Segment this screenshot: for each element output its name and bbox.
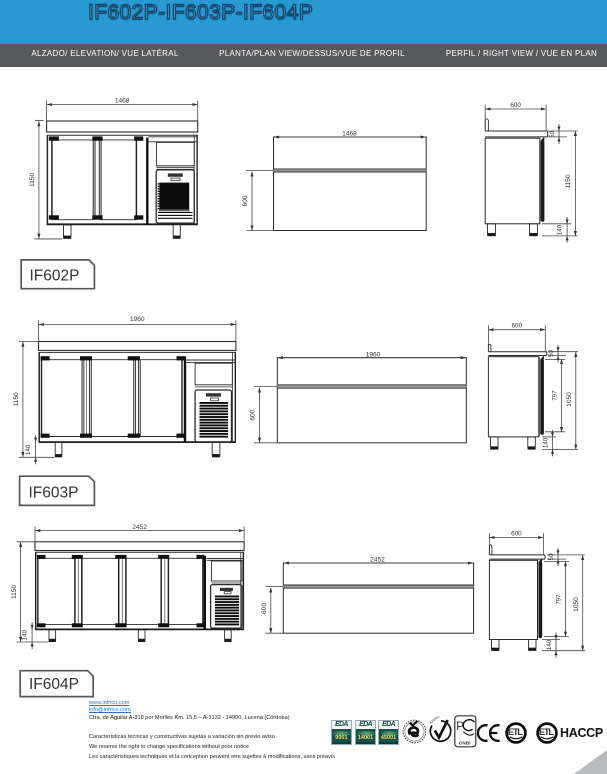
svg-text:2452: 2452 (370, 557, 385, 564)
svg-text:140: 140 (546, 639, 553, 650)
svg-text:1150: 1150 (13, 392, 20, 407)
svg-text:140: 140 (25, 444, 32, 455)
svg-text:600: 600 (512, 322, 523, 329)
svg-text:IF604P: IF604P (29, 676, 79, 693)
svg-text:1468: 1468 (115, 97, 130, 104)
svg-text:1150: 1150 (565, 174, 572, 189)
svg-text:1150: 1150 (29, 173, 36, 188)
svg-text:1050: 1050 (573, 597, 580, 612)
svg-text:140: 140 (22, 629, 29, 640)
svg-text:1150: 1150 (11, 584, 18, 599)
svg-text:IF603P: IF603P (29, 485, 79, 502)
svg-text:600: 600 (242, 195, 249, 206)
svg-text:1960: 1960 (366, 351, 381, 358)
svg-text:APPRO: APPRO (429, 716, 441, 725)
svg-text:1960: 1960 (130, 316, 145, 323)
svg-text:IF602P: IF602P (30, 268, 80, 285)
svg-text:140: 140 (557, 224, 564, 235)
svg-text:600: 600 (250, 409, 257, 420)
svg-text:600: 600 (511, 531, 522, 538)
svg-text:600: 600 (261, 603, 268, 614)
svg-text:1468: 1468 (342, 131, 357, 138)
svg-text:50: 50 (548, 350, 555, 357)
svg-text:797: 797 (556, 594, 563, 605)
svg-text:2452: 2452 (132, 524, 147, 531)
svg-text:1050: 1050 (566, 392, 573, 407)
svg-text:140: 140 (542, 437, 549, 448)
svg-text:600: 600 (510, 102, 521, 109)
svg-text:CNBI: CNBI (459, 741, 471, 747)
svg-text:797: 797 (552, 390, 559, 401)
